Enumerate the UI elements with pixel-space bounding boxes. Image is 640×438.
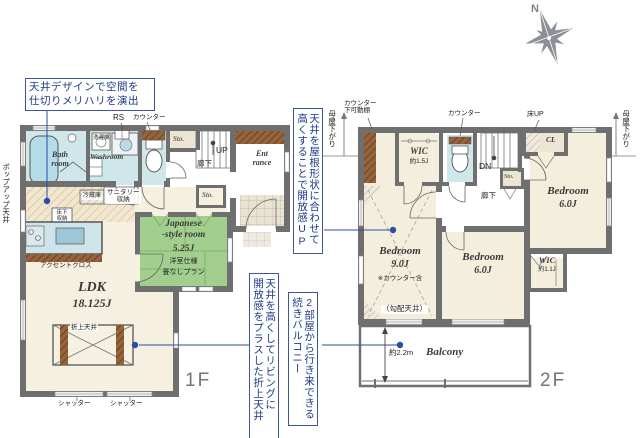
japanese-room-note2: 畳なしプラン [140,269,227,277]
japanese-room-size: 5.25J [140,244,227,255]
bedroom-mid-size: 6.0J [442,265,524,277]
moya-sagari-label: 母屋下がり [621,110,630,162]
rs-label: RS [113,113,124,122]
japanese-room-note1: 洋室仕様 [140,258,227,266]
callout-line: 仕切りメリハリを演出 [29,95,151,109]
callout-line: 続きバルコニー [291,297,303,421]
floor-up-label: 床UP [527,111,544,119]
japanese-room-label: Japanese [140,219,227,230]
callout-line: 2部屋から行き来できる [303,297,315,421]
bedroom-right-label: Bedroom [530,185,606,198]
stairs-up-label: UP [216,146,228,156]
washroom-label: Washroom [90,153,123,162]
closet-label: CL [546,136,556,145]
wic2-size-label: 約1.1J [527,267,567,274]
bathroom-line: room [44,159,76,168]
coffered-ceiling-label: 折上天井 [70,324,98,331]
storage-label: Sto. [173,135,184,143]
bedroom9-size: 9.0J [364,259,436,271]
hallway-label-2f: 廊下 [481,192,496,201]
entrance-label: Ent rance [244,149,280,167]
storage-label-2f: Sto. [504,174,514,181]
underfloor-line: 収納 [54,216,70,222]
bathroom-line: Bath [44,150,76,159]
ldk-size-label: 18.125J [52,297,132,311]
bedroom-mid-label: Bedroom [442,251,524,264]
balcony-label: Balcony [426,346,463,359]
bedroom-right-size: 6.0J [530,199,606,211]
entrance-line: rance [244,158,280,167]
balcony-depth-label: 約2.2m [389,349,413,358]
counter-label-1f: カウンター [133,114,166,121]
floor-label-1f: 1F [185,370,211,392]
shutter-label: シャッター [58,400,91,407]
ldk-label: LDK [60,280,124,296]
entrance-line: Ent [244,149,280,158]
counter-shelf-label: カウンター 下可動棚 [344,100,377,115]
underfloor-storage-label: 床下 収納 [54,210,70,223]
washer-label: 洗濯機 [93,135,110,141]
callout-line: 開放感をプラスした折上天井 [252,278,264,434]
sanitary-line: 収納 [107,196,140,203]
wic-label: WIC [399,146,439,156]
callout-roof: 天井を屋根形状に合わせて 高くすることで開放感UP [293,108,323,254]
floor-plan-page: 天井デザインで空間を 仕切りメリハリを演出 天井を屋根形状に合わせて 高くするこ… [0,0,640,438]
compass-north-label: N [531,3,539,16]
accent-cloth-label: アクセントクロス [40,262,92,269]
counter-label-2f: カウンター [448,110,481,117]
callout-line: 天井デザインで空間を [29,81,151,95]
compass-icon [517,1,582,72]
wic2-label: WIC [527,256,567,266]
moya-sagari-label: 母屋下がり [327,110,336,162]
callout-line: 高くすることで開放感UP [296,113,308,249]
bedroom9-note: ※カウンター含 [364,275,436,282]
shutter-label: シャッター [110,400,143,407]
storage-label: Sto. [202,191,213,199]
stairs-dn-label: DN [479,162,491,172]
bedroom9-label: Bedroom [364,245,436,258]
wic1-size-label: 約1.5J [399,158,439,165]
callout-line: 天井を屋根形状に合わせて [308,113,320,249]
callout-balcony: 2部屋から行き来できる 続きバルコニー [288,292,318,426]
sloped-ceiling-label: （勾配天井） [381,305,428,314]
hallway-label-1f: 廊下 [197,160,212,169]
floor-label-2f: 2F [540,370,566,392]
counter-shelf-line: 下可動棚 [344,107,377,114]
callout-line: 天井を高くしてリビングに [264,278,276,434]
popup-ceiling-label: ポップアップ天井 [1,163,10,243]
fridge-label: 冷蔵庫 [82,193,102,200]
callout-ceiling-design: 天井デザインで空間を 仕切りメリハリを演出 [25,78,155,111]
sanitary-storage-label: サニタリー 収納 [106,189,141,204]
japanese-room-label2: -style room [140,230,227,241]
bathroom-label: Bath room [44,150,76,168]
callout-coffered: 天井を高くしてリビングに 開放感をプラスした折上天井 [249,273,279,438]
